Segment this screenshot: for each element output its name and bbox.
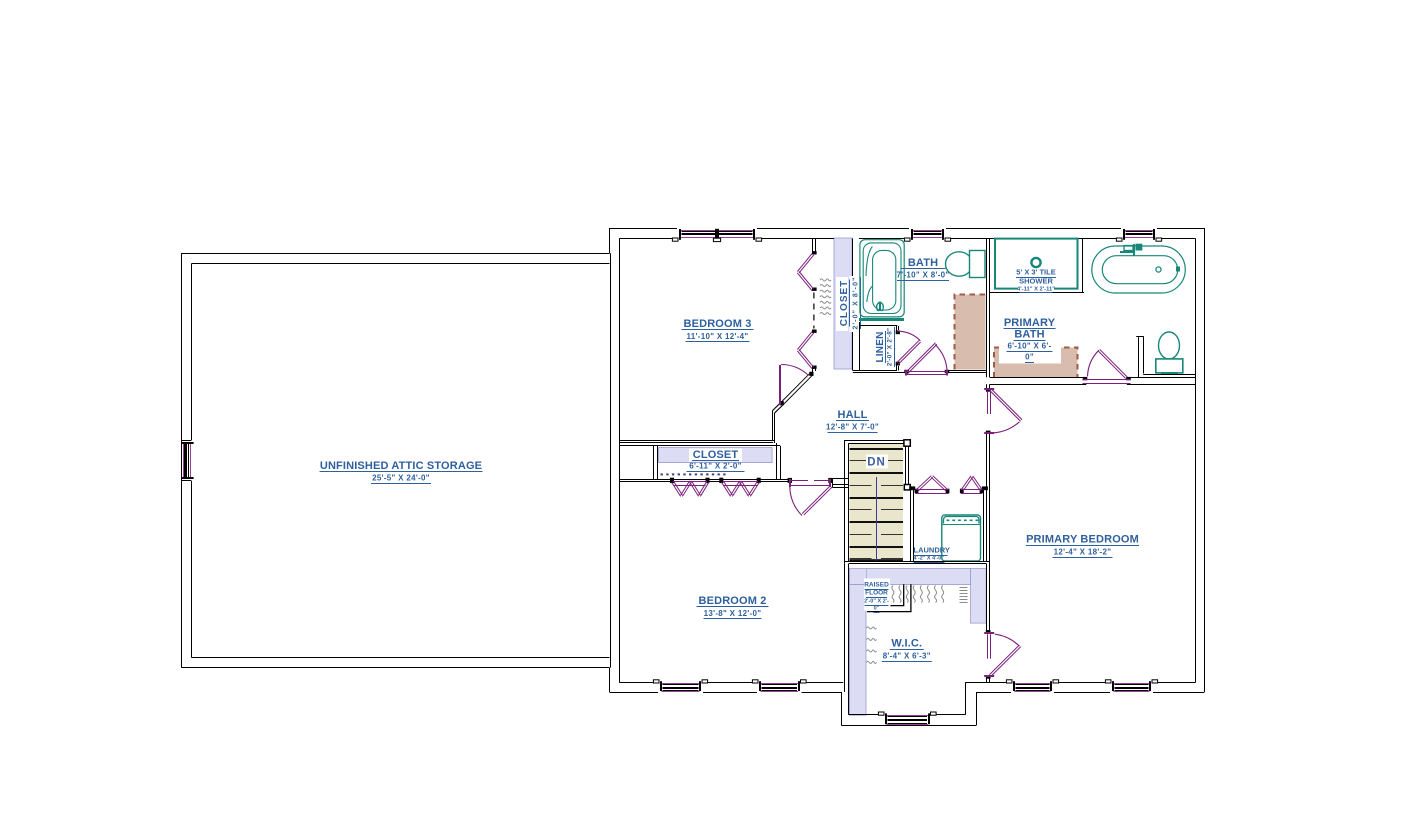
svg-text:7'-10" X 8'-0": 7'-10" X 8'-0" [897, 271, 950, 280]
svg-text:2'-0" X 2'-: 2'-0" X 2'- [864, 599, 889, 605]
svg-text:HALL: HALL [838, 409, 868, 421]
svg-text:11'-10" X 12'-4": 11'-10" X 12'-4" [686, 332, 748, 341]
svg-text:DN: DN [867, 457, 886, 469]
svg-text:13'-8" X 12'-0": 13'-8" X 12'-0" [704, 609, 762, 618]
svg-text:25'-5" X 24'-0": 25'-5" X 24'-0" [372, 474, 430, 483]
svg-text:UNFINISHED ATTIC STORAGE: UNFINISHED ATTIC STORAGE [320, 460, 482, 472]
svg-text:PRIMARY BEDROOM: PRIMARY BEDROOM [1026, 534, 1139, 546]
svg-text:LINEN: LINEN [875, 332, 886, 363]
svg-text:6'-11" X 2'-0": 6'-11" X 2'-0" [689, 462, 742, 471]
svg-text:4'-11" X 2'-11": 4'-11" X 2'-11" [1017, 286, 1055, 292]
svg-text:SHOWER: SHOWER [1019, 277, 1053, 286]
svg-text:RAISED: RAISED [864, 582, 889, 589]
svg-text:5' X 3' TILE: 5' X 3' TILE [1016, 268, 1055, 277]
svg-text:BATH: BATH [908, 257, 938, 269]
svg-text:8'-4" X 6'-3": 8'-4" X 6'-3" [883, 652, 931, 661]
svg-text:FLOOR: FLOOR [865, 590, 888, 597]
svg-text:CLOSET: CLOSET [693, 449, 739, 461]
svg-text:LAUNDRY: LAUNDRY [914, 546, 950, 555]
svg-text:2'-0" X 8'-0": 2'-0" X 8'-0" [853, 276, 860, 329]
svg-text:12'-8" X 7'-0": 12'-8" X 7'-0" [826, 423, 879, 432]
svg-text:PRIMARY: PRIMARY [1004, 317, 1056, 329]
svg-text:6'-10" X 6'-: 6'-10" X 6'- [1007, 342, 1051, 351]
svg-text:W.I.C.: W.I.C. [891, 638, 922, 650]
svg-text:4'-2" X 4'-0": 4'-2" X 4'-0" [914, 556, 945, 562]
svg-text:0": 0" [874, 606, 880, 612]
svg-text:CLOSET: CLOSET [839, 280, 850, 327]
svg-text:BEDROOM 3: BEDROOM 3 [684, 318, 752, 330]
svg-text:BEDROOM 2: BEDROOM 2 [699, 595, 767, 607]
svg-text:2'-0" X 2'-8": 2'-0" X 2'-8" [887, 328, 894, 367]
svg-text:0": 0" [1025, 353, 1034, 362]
svg-text:BATH: BATH [1014, 329, 1044, 341]
svg-text:12'-4" X 18'-2": 12'-4" X 18'-2" [1054, 548, 1112, 557]
